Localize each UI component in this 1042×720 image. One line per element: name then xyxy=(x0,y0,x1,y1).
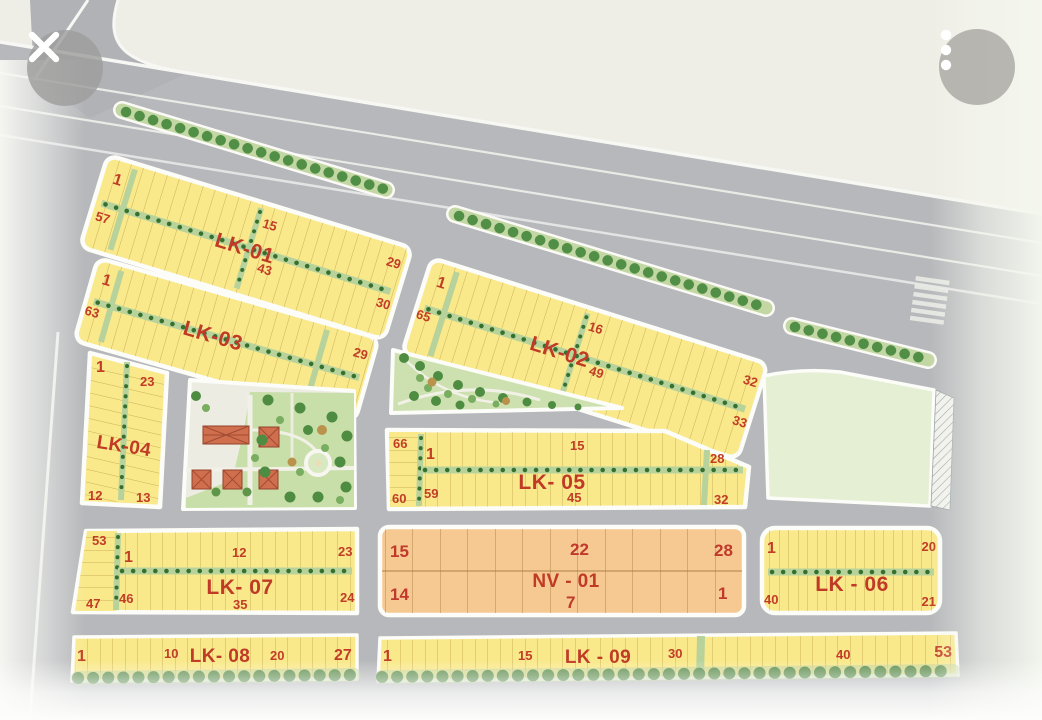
plot-number: 7 xyxy=(566,593,575,612)
block-label-lk-06: LK - 06 xyxy=(815,573,889,596)
plot-number: 10 xyxy=(164,646,178,661)
plot-number: 14 xyxy=(390,585,409,604)
plot-number: 1 xyxy=(383,648,392,665)
plot-number: 59 xyxy=(424,486,438,501)
plot-number: 1 xyxy=(77,648,86,665)
plot-number: 66 xyxy=(393,436,407,451)
plot-number: 30 xyxy=(668,646,682,661)
block-lk-05: 66 1 15 28 60 59 45 32 LK- 05 xyxy=(387,430,749,509)
plot-number: 15 xyxy=(390,542,409,561)
block-label-lk-05: LK- 05 xyxy=(518,471,585,494)
plot-number: 15 xyxy=(570,438,584,453)
plot-number: 12 xyxy=(88,488,102,503)
plot-number: 1 xyxy=(96,359,105,376)
plot-number: 1 xyxy=(124,549,133,566)
plot-number: 23 xyxy=(140,374,154,389)
plot-number: 35 xyxy=(233,597,247,612)
clubhouse-block xyxy=(183,380,355,509)
more-options-button[interactable] xyxy=(939,29,1015,105)
block-lk-04: 1 23 12 13 LK-04 xyxy=(82,353,167,507)
reserved-green-plot xyxy=(764,371,954,510)
close-button[interactable] xyxy=(27,30,103,106)
plot-number: 23 xyxy=(338,544,352,559)
block-label-lk-08: LK- 08 xyxy=(190,646,250,667)
plot-number: 24 xyxy=(340,590,355,605)
plot-number: 1 xyxy=(767,540,776,557)
block-label-nv-01: NV - 01 xyxy=(532,571,599,592)
plot-number: 32 xyxy=(714,492,728,507)
block-lk-06: 1 20 40 21 LK - 06 xyxy=(762,528,940,613)
plot-number: 20 xyxy=(270,648,284,663)
block-label-lk-07: LK- 07 xyxy=(206,576,273,599)
plot-number: 40 xyxy=(836,647,850,662)
plot-number: 13 xyxy=(136,490,150,505)
plot-number: 40 xyxy=(764,592,778,607)
plot-number: 21 xyxy=(922,594,936,609)
block-lk-09: 1 15 30 40 53 LK - 09 xyxy=(378,633,958,681)
plot-number: 12 xyxy=(232,545,246,560)
plot-number: 1 xyxy=(718,584,727,603)
vertical-dots-icon xyxy=(939,29,953,71)
plot-number: 28 xyxy=(710,451,724,466)
plot-number: 28 xyxy=(714,541,733,560)
plot-number: 22 xyxy=(570,540,589,559)
plot-number: 1 xyxy=(426,446,435,463)
block-label-lk-09: LK - 09 xyxy=(565,647,631,668)
close-icon xyxy=(27,30,61,64)
plot-number: 15 xyxy=(518,648,532,663)
image-viewer: 1 57 15 43 29 30 LK-01 1 63 29 36 LK-03 … xyxy=(0,0,1042,720)
plot-number: 46 xyxy=(119,591,133,606)
plot-number: 27 xyxy=(334,647,352,664)
block-nv-01: 15 22 28 14 7 1 NV - 01 xyxy=(380,527,744,615)
plot-number: 20 xyxy=(922,539,936,554)
plot-number: 47 xyxy=(86,596,100,611)
plot-number: 53 xyxy=(92,533,106,548)
site-plan-image[interactable]: 1 57 15 43 29 30 LK-01 1 63 29 36 LK-03 … xyxy=(0,0,1042,720)
plot-number: 53 xyxy=(934,644,952,661)
block-lk-08: 1 10 20 27 LK- 08 xyxy=(72,635,357,681)
block-lk-07: 53 1 12 23 47 46 35 24 LK- 07 xyxy=(73,529,357,613)
plot-number: 60 xyxy=(392,491,406,506)
